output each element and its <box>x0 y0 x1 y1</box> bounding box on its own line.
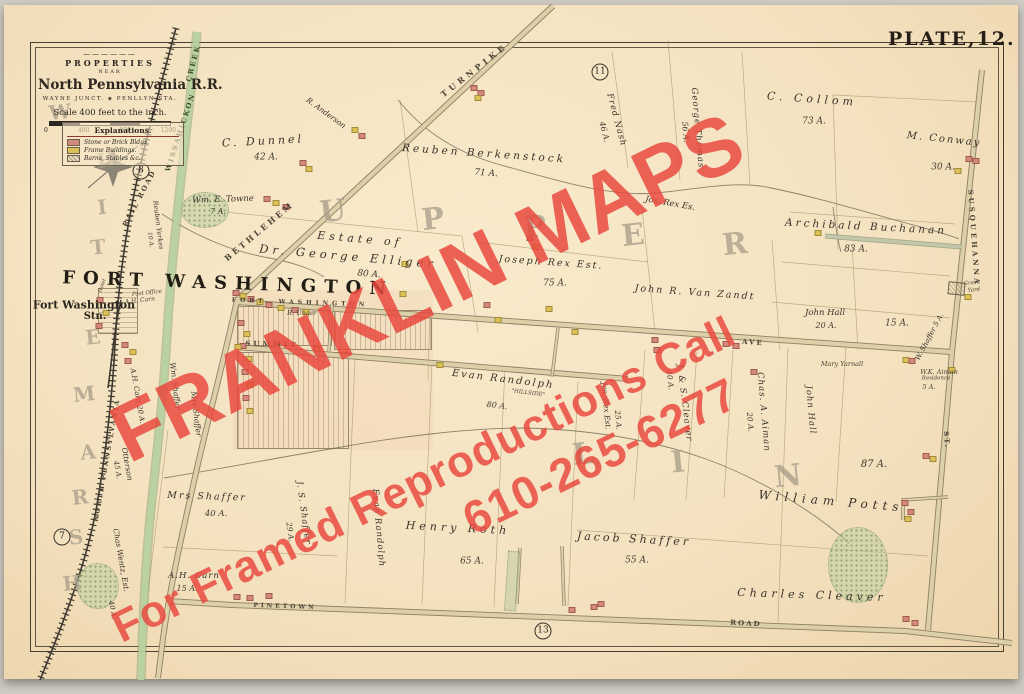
legend-item: Barns, Stables &c. <box>67 155 179 162</box>
building-frame <box>965 294 972 300</box>
building-frame <box>352 127 359 133</box>
township-letter: E <box>84 326 101 347</box>
map-label: Fort Washington <box>33 300 135 311</box>
township-letter: A <box>79 441 97 463</box>
map-label: ST. <box>943 431 951 449</box>
map-label: AVE <box>742 338 764 346</box>
township-letter: H <box>62 572 83 594</box>
circled-number: 11 <box>592 64 609 81</box>
map-label: 5 A. <box>923 384 936 391</box>
building-frame <box>495 317 502 323</box>
township-letter: U <box>318 196 347 229</box>
building-stone <box>122 342 129 348</box>
map-label: Stn. <box>84 312 107 322</box>
building-frame <box>475 95 482 101</box>
building-frame <box>306 166 313 172</box>
circled-number: 13 <box>535 623 552 640</box>
circled-number: 7 <box>54 529 71 546</box>
building-stone <box>247 595 254 601</box>
building-stone <box>471 85 478 91</box>
legend-box: Explanations. Stone or Brick Bldgs. Fram… <box>62 122 184 166</box>
map-label: 83 A. <box>844 246 868 255</box>
building-stone <box>973 158 980 164</box>
scale-caption: Scale 400 feet to the inch. <box>38 108 182 118</box>
township-letter: I <box>96 197 107 218</box>
map-label: 15 A. <box>885 320 909 329</box>
map-label: 20 A. <box>815 322 836 330</box>
legend-title: Explanations. <box>67 126 179 137</box>
title-properties: PROPERTIES <box>38 58 182 68</box>
map-label: 42 A. <box>254 154 278 163</box>
title-near: NEAR <box>38 69 182 75</box>
building-stone <box>923 453 930 459</box>
building-frame <box>955 168 962 174</box>
building-frame <box>273 200 280 206</box>
building-stone <box>912 620 919 626</box>
map-label: 7 A. <box>210 208 226 216</box>
title-railroad-name: North Pennsylvania R.R. <box>38 77 182 93</box>
stone-swatch <box>67 139 80 146</box>
map-label: 65 A. <box>460 558 484 567</box>
township-letter: M <box>72 383 96 405</box>
building-frame <box>930 456 937 462</box>
map-label: Mrs Shaffer <box>167 491 247 503</box>
building-frame <box>437 362 444 368</box>
building-stone <box>908 509 915 515</box>
building-frame <box>905 516 912 522</box>
map-label: 87 A. <box>861 460 887 470</box>
building-stone <box>264 196 271 202</box>
map-label: 10 A. <box>146 232 154 248</box>
title-stations: WAYNE JUNCT. ◈ PENLLYN STA. <box>38 96 182 102</box>
map-label: 30 A. <box>931 164 955 173</box>
township-letter: T <box>90 236 107 257</box>
building-stone <box>125 358 132 364</box>
building-stone <box>359 133 366 139</box>
map-label: 40 A. <box>205 510 227 519</box>
building-stone <box>598 601 605 607</box>
building-frame <box>572 329 579 335</box>
legend-item-label: Stone or Brick Bldgs. <box>84 139 149 146</box>
map-scan: UPPERLINWHITEMARSH TURNPIKEBETHLEHEMFORT… <box>0 0 1024 694</box>
map-label: 55 A. <box>625 557 649 566</box>
map-label: ROAD <box>730 619 762 628</box>
map-label: Wm. E. Towne <box>192 195 254 206</box>
map-label: John Hall <box>805 309 845 318</box>
map-label: Mary Yarnall <box>821 361 863 368</box>
township-letter: R <box>71 486 90 508</box>
building-frame <box>130 349 137 355</box>
scale-tick: 0 <box>44 127 48 134</box>
plate-number: PLATE,12. <box>888 28 1016 50</box>
frame-swatch <box>67 147 80 154</box>
building-stone <box>966 156 973 162</box>
building-stone <box>569 607 576 613</box>
building-stone <box>591 604 598 610</box>
building-stone <box>266 593 273 599</box>
map-label: 71 A. <box>474 169 498 180</box>
map-label: 20 A. <box>745 412 754 432</box>
building-frame <box>546 306 553 312</box>
township-letter: I <box>669 447 686 478</box>
legend-item: Stone or Brick Bldgs. <box>67 139 179 146</box>
legend-item-label: Barns, Stables &c. <box>84 155 141 162</box>
barn-swatch <box>67 155 80 162</box>
legend-item-label: Frame Buildings. <box>84 147 136 154</box>
map-label: 73 A. <box>802 118 826 127</box>
building-stone <box>903 616 910 622</box>
building-frame <box>815 230 822 236</box>
title-ornament: —————— <box>38 50 182 58</box>
township-letter: R <box>721 229 749 261</box>
map-label: Residence <box>922 376 951 382</box>
legend-item: Frame Buildings. <box>67 147 179 154</box>
